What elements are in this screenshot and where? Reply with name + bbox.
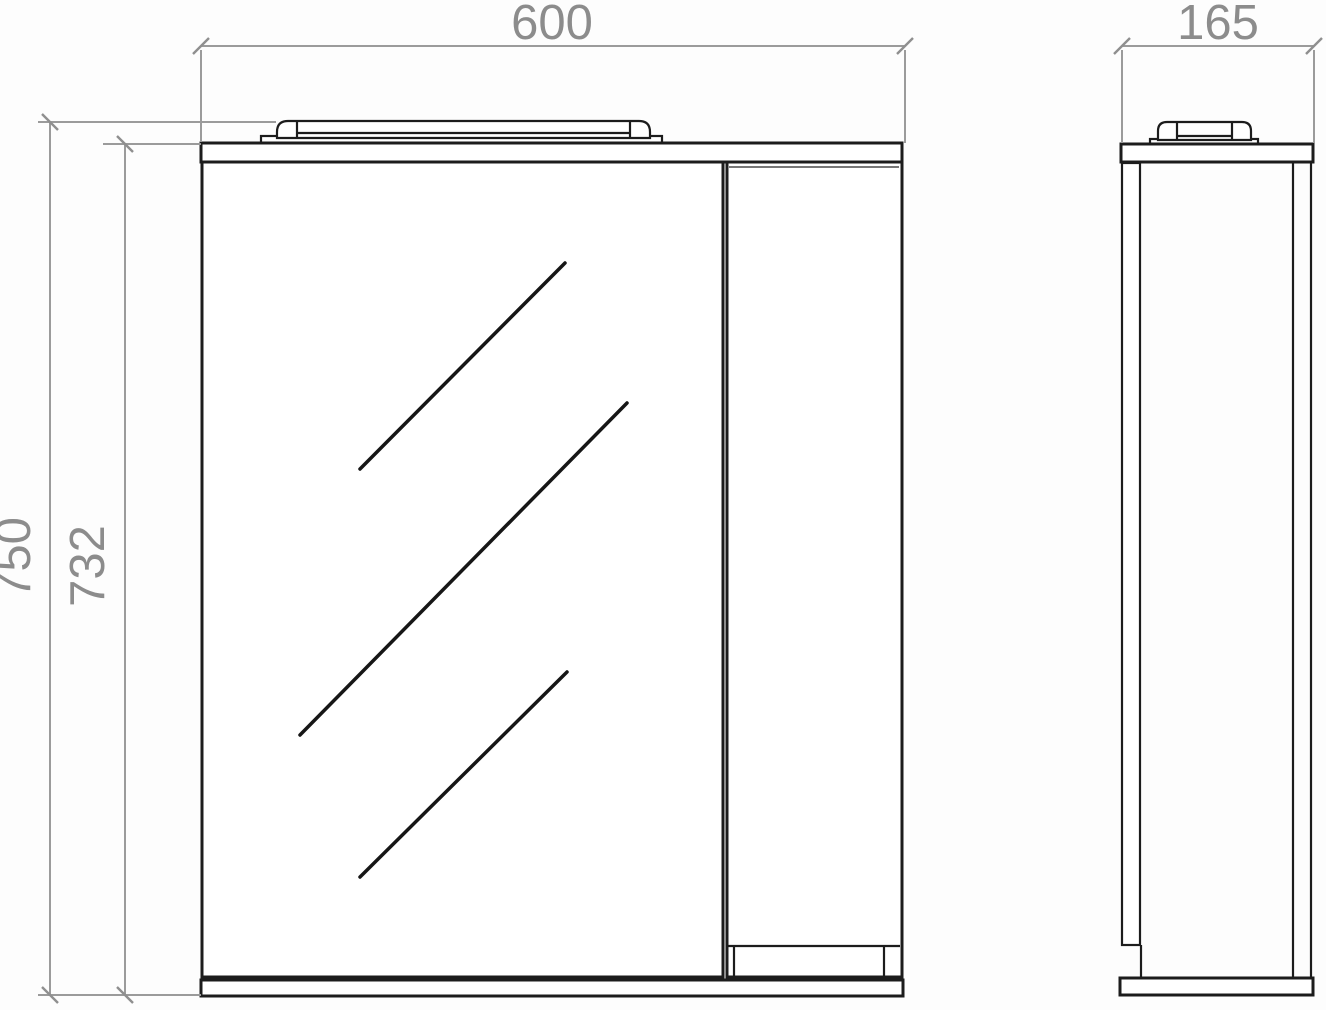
side-shelf-section [727, 162, 902, 977]
lamp-body [277, 121, 650, 138]
dim-label-side-depth: 165 [1177, 0, 1259, 50]
front-view [201, 121, 903, 996]
dim-label-cabinet-height: 732 [61, 525, 115, 607]
drawing-svg: 600 165 750 732 [0, 0, 1326, 1010]
dim-label-overall-height: 750 [0, 517, 41, 599]
top-panel [201, 143, 902, 162]
side-door-strip [1122, 163, 1140, 945]
side-lamp-body [1158, 122, 1251, 140]
side-bottom-panel [1120, 978, 1313, 995]
dimension-cabinet-height: 732 [61, 136, 201, 1003]
side-top-light-fixture [1150, 122, 1258, 146]
side-view [1120, 122, 1313, 995]
technical-drawing: 600 165 750 732 [0, 0, 1326, 1010]
bottom-panel [201, 980, 903, 996]
top-light-fixture [261, 121, 662, 144]
side-top-panel [1121, 144, 1313, 162]
dim-label-front-width: 600 [511, 0, 593, 50]
